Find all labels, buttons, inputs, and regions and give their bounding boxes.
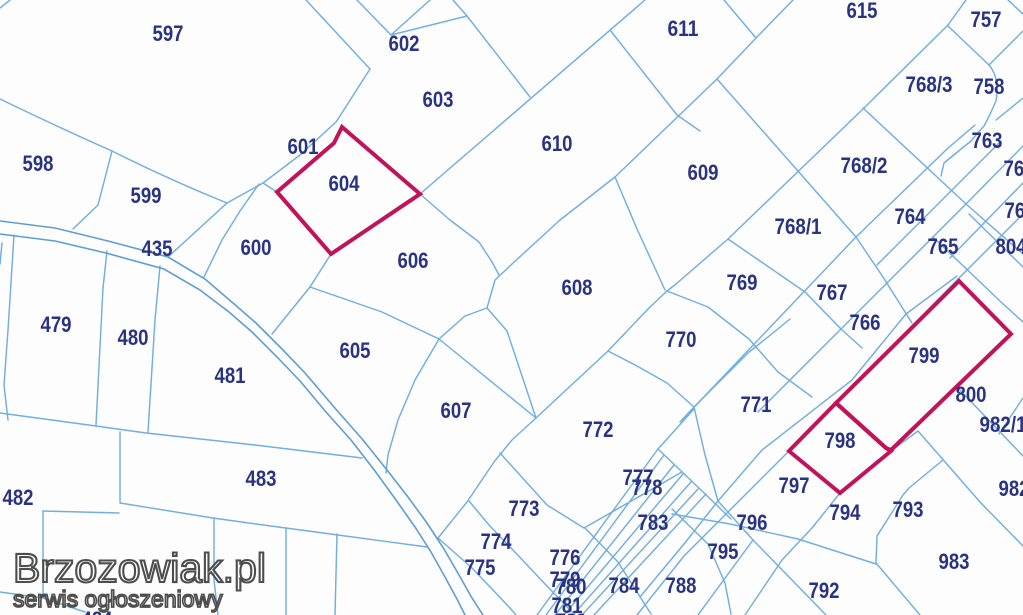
svg-text:609: 609 (688, 160, 719, 185)
svg-text:480: 480 (118, 325, 149, 350)
svg-text:483: 483 (246, 466, 277, 491)
svg-text:796: 796 (737, 510, 768, 535)
svg-text:597: 597 (153, 21, 184, 46)
svg-text:763: 763 (1004, 156, 1023, 181)
svg-text:784: 784 (609, 573, 641, 598)
svg-text:610: 610 (542, 131, 573, 156)
svg-text:768/3: 768/3 (906, 72, 953, 97)
svg-text:615: 615 (847, 0, 878, 23)
svg-text:767: 767 (817, 280, 848, 305)
svg-text:601: 601 (288, 134, 319, 159)
svg-text:982: 982 (999, 476, 1023, 501)
svg-text:794: 794 (830, 500, 862, 525)
svg-text:602: 602 (389, 31, 420, 56)
svg-text:799: 799 (909, 343, 940, 368)
svg-text:482: 482 (3, 485, 34, 510)
svg-text:598: 598 (23, 151, 54, 176)
svg-text:605: 605 (340, 338, 371, 363)
svg-text:783: 783 (638, 510, 669, 535)
svg-text:768/1: 768/1 (775, 214, 822, 239)
svg-text:481: 481 (215, 363, 246, 388)
svg-text:757: 757 (971, 7, 1002, 32)
svg-text:788: 788 (666, 573, 697, 598)
svg-text:772: 772 (583, 417, 614, 442)
svg-text:773: 773 (509, 496, 540, 521)
svg-text:798: 798 (825, 428, 856, 453)
svg-text:782: 782 (556, 609, 587, 615)
svg-text:982/1: 982/1 (980, 412, 1023, 437)
svg-text:770: 770 (666, 327, 697, 352)
svg-text:758: 758 (974, 74, 1005, 99)
svg-text:778: 778 (632, 475, 663, 500)
svg-text:607: 607 (441, 398, 472, 423)
svg-text:604: 604 (329, 171, 361, 196)
svg-text:804: 804 (996, 234, 1023, 259)
svg-text:611: 611 (668, 16, 699, 41)
svg-text:771: 771 (741, 392, 772, 417)
svg-text:600: 600 (241, 235, 272, 260)
svg-text:608: 608 (562, 275, 593, 300)
svg-text:603: 603 (423, 87, 454, 112)
svg-text:serwis ogłoszeniowy: serwis ogłoszeniowy (13, 586, 223, 612)
svg-text:800: 800 (956, 382, 987, 407)
svg-text:765: 765 (928, 234, 959, 259)
svg-text:792: 792 (809, 578, 840, 603)
svg-text:763: 763 (972, 128, 1003, 153)
svg-text:797: 797 (779, 473, 810, 498)
svg-text:983: 983 (939, 549, 970, 574)
svg-text:795: 795 (708, 539, 739, 564)
svg-text:775: 775 (465, 555, 496, 580)
svg-text:479: 479 (41, 312, 72, 337)
svg-text:768/2: 768/2 (841, 153, 888, 178)
svg-text:793: 793 (893, 497, 924, 522)
svg-text:764: 764 (895, 204, 927, 229)
svg-text:764: 764 (1005, 198, 1023, 223)
svg-text:769: 769 (727, 270, 758, 295)
svg-text:435: 435 (142, 236, 173, 261)
svg-text:766: 766 (850, 310, 881, 335)
svg-text:606: 606 (398, 248, 429, 273)
svg-text:599: 599 (131, 183, 162, 208)
svg-text:Brzozowiak.pl: Brzozowiak.pl (13, 545, 266, 591)
svg-text:774: 774 (481, 529, 513, 554)
